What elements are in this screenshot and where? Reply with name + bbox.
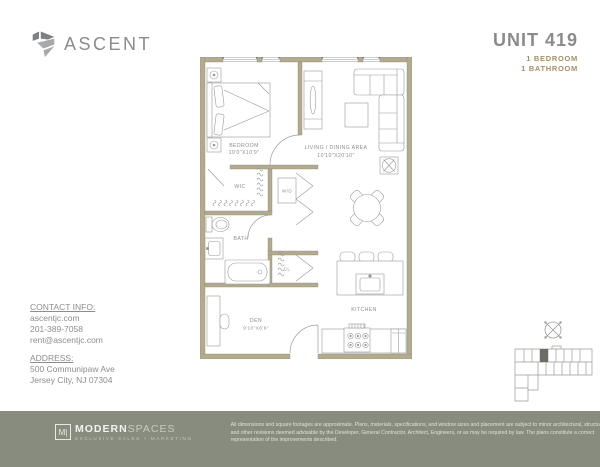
living-dims: 10'10"X20'10" <box>317 153 354 159</box>
den-dims: 9'10"X6'6" <box>243 326 269 332</box>
bed-icon <box>207 83 270 137</box>
dining-set-icon <box>349 189 385 227</box>
unit-header: UNIT 419 1 BEDROOM 1 BATHROOM <box>493 30 578 73</box>
bath-label: BATH <box>233 236 248 242</box>
disclaimer-line-1: All dimensions and square footages are a… <box>231 422 600 430</box>
contact-email: rent@ascentjc.com <box>30 335 115 346</box>
bathtub-icon <box>225 260 270 284</box>
cl-label: CL <box>284 267 291 272</box>
kitchen-island-icon <box>337 252 403 295</box>
key-plan <box>510 316 598 408</box>
toilet-icon <box>206 217 229 232</box>
contact-block: CONTACT INFO: ascentjc.com 201-389-7058 … <box>30 302 115 386</box>
disclaimer-text: All dimensions and square footages are a… <box>231 422 600 445</box>
contact-phone: 201-389-7058 <box>30 324 115 335</box>
wic-label: WIC <box>234 184 245 190</box>
floor-plan: BEDROOM 10'0"X10'9" LIVING / DINING AREA… <box>200 57 412 359</box>
modern-spaces-name-light: SPACES <box>128 423 176 435</box>
disclaimer-line-3: representation of the improvements descr… <box>231 437 600 445</box>
closet-bifold-icon <box>296 255 313 281</box>
modern-spaces-name-bold: MODERN <box>75 423 128 435</box>
stove-icon <box>344 324 370 352</box>
wd-label: W/D <box>282 189 292 194</box>
bedroom-dims: 10'0"X10'9" <box>229 150 260 156</box>
living-label: LIVING / DINING AREA <box>305 145 368 151</box>
floorplan-sheet: ASCENT UNIT 419 1 BEDROOM 1 BATHROOM <box>0 0 600 467</box>
contact-heading: CONTACT INFO: <box>30 302 115 313</box>
address-city: Jersey City, NJ 07304 <box>30 375 115 386</box>
contact-website: ascentjc.com <box>30 313 115 324</box>
compass-icon <box>544 321 561 338</box>
unit-bedrooms: 1 BEDROOM <box>493 54 578 64</box>
disclaimer-line-2: and other revisions deemed advisable by … <box>231 430 600 438</box>
den-label: DEN <box>250 318 262 324</box>
footer-bar: M| MODERNSPACES EXCLUSIVE SALES + MARKET… <box>0 411 600 467</box>
tv-console-icon <box>304 71 322 129</box>
washer-dryer-icon <box>278 173 313 225</box>
sink-vanity-icon <box>205 238 223 259</box>
desk-icon <box>207 296 229 346</box>
kitchen-label: KITCHEN <box>351 307 377 313</box>
modern-spaces-monogram: M| <box>55 424 71 440</box>
building-footprint <box>515 346 592 401</box>
bedroom-label: BEDROOM <box>229 143 259 149</box>
ascent-logo-icon <box>30 30 57 59</box>
brand-logo: ASCENT <box>30 30 152 59</box>
unit-highlight <box>540 349 548 362</box>
modern-spaces-logo: M| MODERNSPACES EXCLUSIVE SALES + MARKET… <box>55 424 193 441</box>
ceiling-fan-icon <box>380 157 398 174</box>
brand-name: ASCENT <box>64 34 152 55</box>
unit-number: UNIT 419 <box>493 30 578 51</box>
fridge-icon <box>391 329 406 353</box>
address-street: 500 Communipaw Ave <box>30 364 115 375</box>
unit-bathrooms: 1 BATHROOM <box>493 64 578 74</box>
modern-spaces-tagline: EXCLUSIVE SALES + MARKETING <box>75 436 193 441</box>
coffee-table-icon <box>345 103 368 127</box>
address-heading: ADDRESS: <box>30 353 115 364</box>
